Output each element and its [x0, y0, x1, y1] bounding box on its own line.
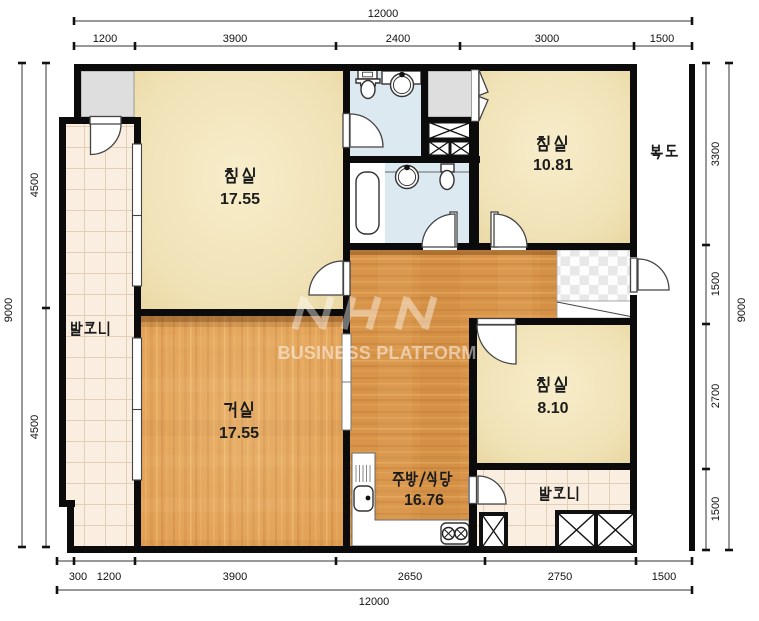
svg-text:2750: 2750	[548, 571, 572, 583]
svg-text:17.55: 17.55	[219, 425, 259, 442]
svg-text:1200: 1200	[97, 571, 121, 583]
svg-text:10.81: 10.81	[533, 157, 573, 174]
svg-text:1500: 1500	[710, 272, 722, 296]
svg-text:1500: 1500	[710, 497, 722, 521]
svg-text:3900: 3900	[223, 33, 247, 45]
svg-text:3300: 3300	[710, 142, 722, 166]
svg-text:12000: 12000	[359, 596, 390, 608]
svg-text:9000: 9000	[736, 298, 748, 322]
svg-text:16.76: 16.76	[404, 492, 444, 509]
svg-text:9000: 9000	[3, 298, 15, 322]
svg-text:17.55: 17.55	[220, 191, 260, 208]
svg-text:1200: 1200	[93, 33, 117, 45]
svg-text:2700: 2700	[710, 384, 722, 408]
svg-text:2400: 2400	[386, 33, 410, 45]
svg-text:2650: 2650	[398, 571, 422, 583]
svg-text:1500: 1500	[650, 33, 674, 45]
svg-text:300: 300	[69, 571, 87, 583]
svg-text:4500: 4500	[29, 173, 41, 197]
svg-text:3000: 3000	[535, 33, 559, 45]
svg-text:3900: 3900	[223, 571, 247, 583]
svg-text:4500: 4500	[29, 415, 41, 439]
svg-text:BUSINESS PLATFORM: BUSINESS PLATFORM	[277, 343, 476, 363]
svg-text:1500: 1500	[652, 571, 676, 583]
svg-text:8.10: 8.10	[537, 400, 568, 417]
svg-text:12000: 12000	[368, 8, 399, 20]
